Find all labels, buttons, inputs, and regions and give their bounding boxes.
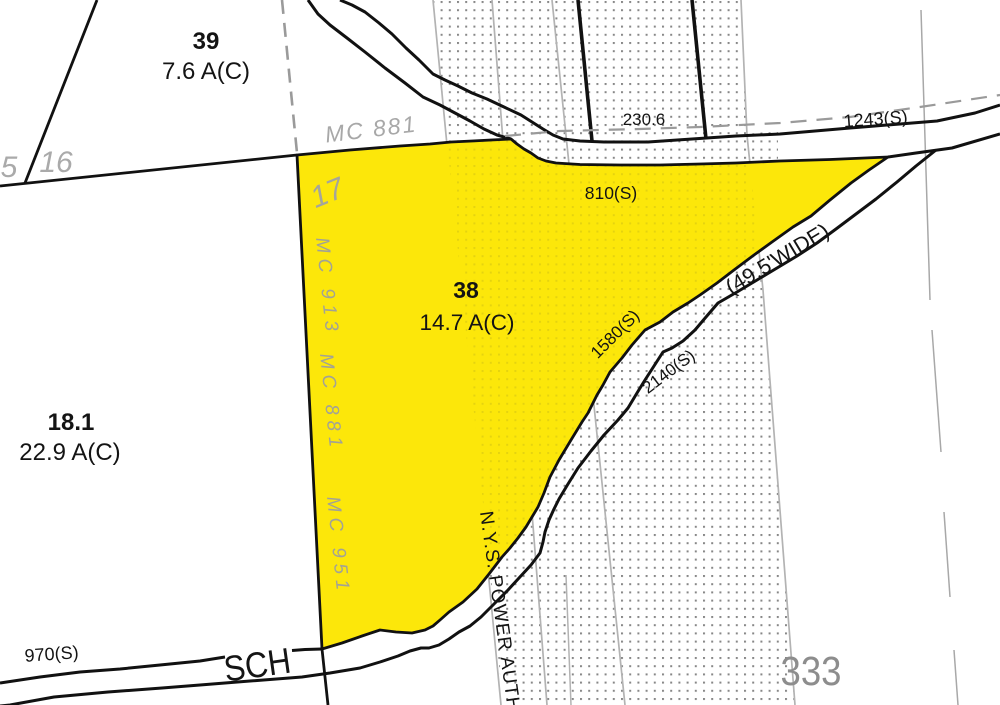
svg-text:18.1: 18.1 [48,409,95,436]
svg-text:38: 38 [453,277,479,303]
svg-text:333: 333 [781,648,842,694]
svg-text:39: 39 [193,28,220,55]
svg-text:970(S): 970(S) [24,642,79,666]
svg-text:5: 5 [1,151,18,184]
svg-text:7.6 A(C): 7.6 A(C) [162,58,250,85]
svg-text:22.9 A(C): 22.9 A(C) [19,439,120,466]
svg-text:16: 16 [39,146,73,179]
svg-text:14.7 A(C): 14.7 A(C) [419,310,514,335]
svg-text:230.6: 230.6 [623,110,666,129]
svg-text:810(S): 810(S) [585,183,638,203]
